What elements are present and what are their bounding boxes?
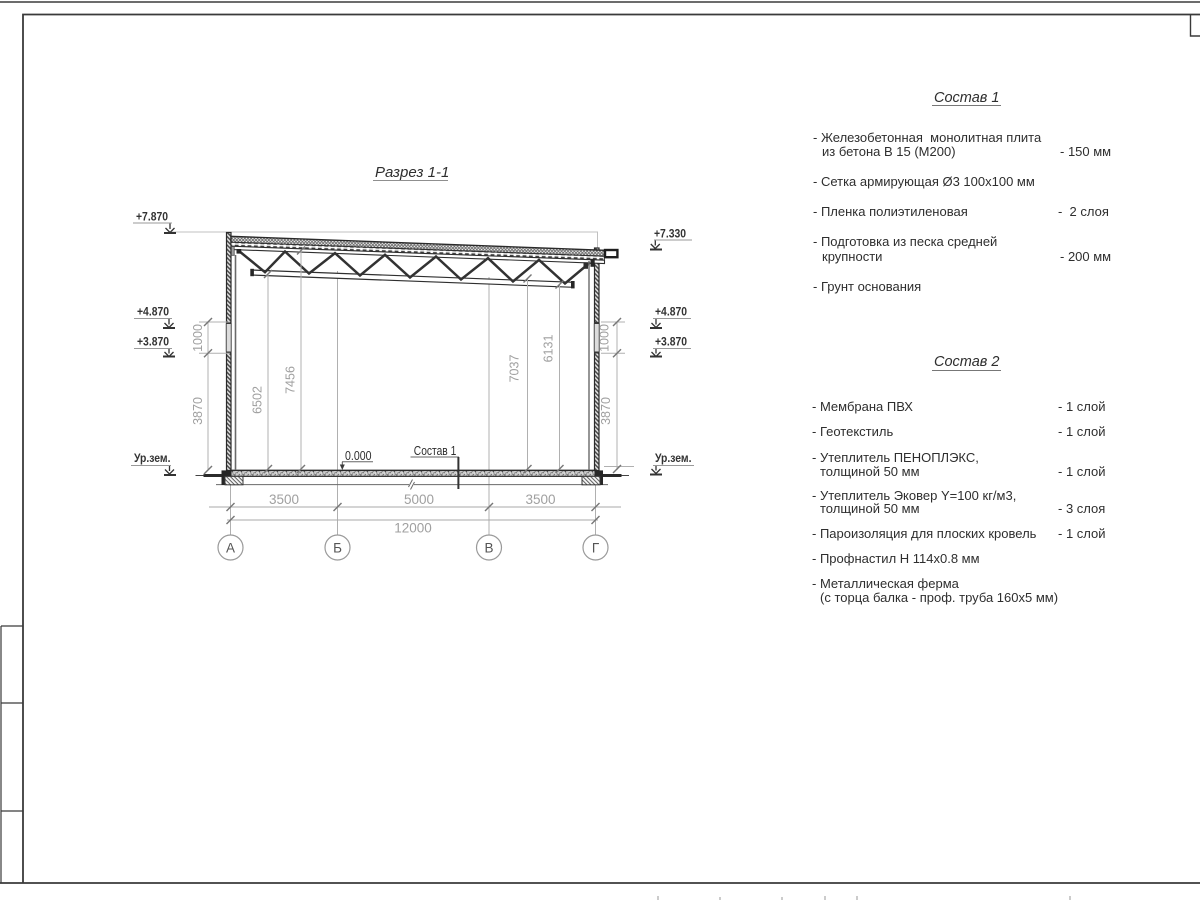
svg-text:6131: 6131 xyxy=(542,335,556,363)
svg-text:6502: 6502 xyxy=(251,386,265,414)
svg-text:В: В xyxy=(484,541,493,556)
svg-text:+4.870: +4.870 xyxy=(137,305,169,319)
svg-text:3870: 3870 xyxy=(191,397,205,425)
svg-text:Г: Г xyxy=(592,541,600,556)
svg-text:Разрез 1-1: Разрез 1-1 xyxy=(375,164,449,181)
svg-text:5000: 5000 xyxy=(404,492,434,507)
svg-text:Ур.зем.: Ур.зем. xyxy=(655,451,692,465)
svg-text:3500: 3500 xyxy=(269,492,299,507)
svg-text:Состав 1: Состав 1 xyxy=(414,444,457,458)
svg-text:0.000: 0.000 xyxy=(345,449,372,463)
svg-text:1000: 1000 xyxy=(191,324,205,352)
svg-text:3500: 3500 xyxy=(525,492,555,507)
svg-text:+4.870: +4.870 xyxy=(655,305,687,319)
svg-text:7456: 7456 xyxy=(284,366,298,394)
svg-text:3870: 3870 xyxy=(599,397,613,425)
svg-text:А: А xyxy=(226,541,235,556)
svg-text:7037: 7037 xyxy=(508,355,522,383)
svg-text:+7.330: +7.330 xyxy=(654,227,686,241)
svg-text:+3.870: +3.870 xyxy=(137,335,169,349)
svg-text:+7.870: +7.870 xyxy=(136,210,168,224)
svg-text:Б: Б xyxy=(333,541,342,556)
svg-text:Ур.зем.: Ур.зем. xyxy=(134,451,171,465)
svg-text:1000: 1000 xyxy=(598,324,612,352)
svg-text:+3.870: +3.870 xyxy=(655,335,687,349)
svg-text:12000: 12000 xyxy=(394,521,432,536)
